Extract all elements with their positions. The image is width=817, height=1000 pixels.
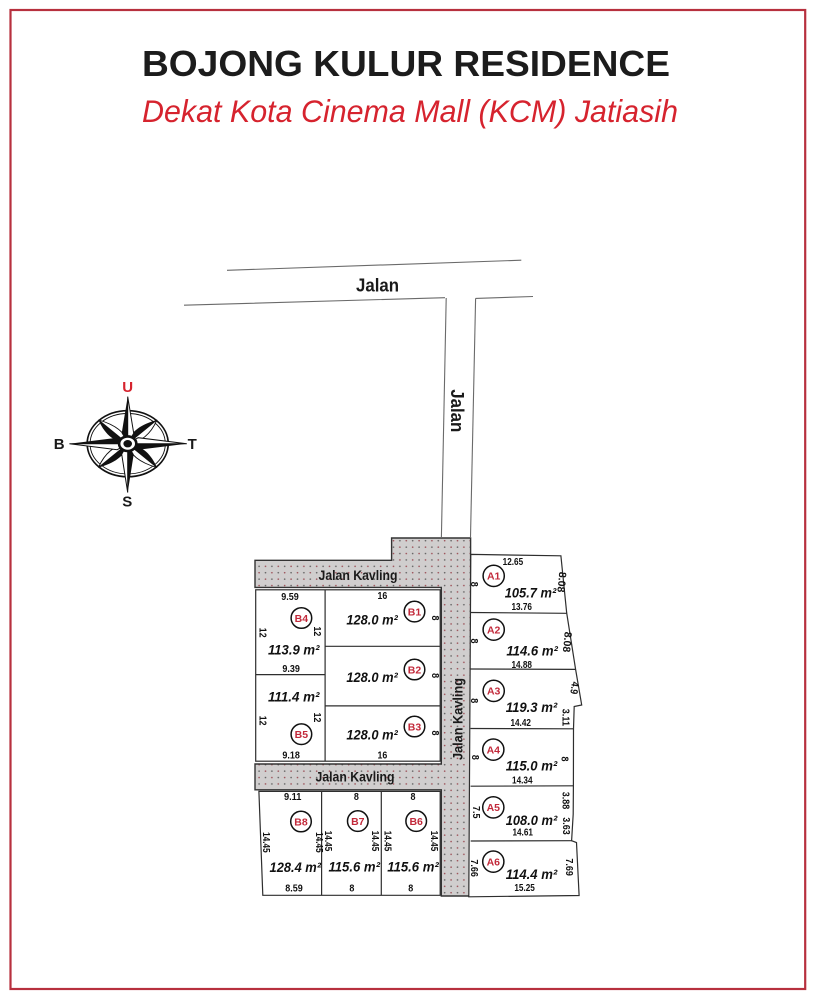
svg-text:111.4 m²: 111.4 m² <box>268 690 320 705</box>
svg-text:8: 8 <box>354 791 359 803</box>
svg-text:8: 8 <box>429 731 441 736</box>
svg-text:14.45: 14.45 <box>428 831 440 852</box>
svg-text:B7: B7 <box>351 816 365 828</box>
svg-text:119.3 m²: 119.3 m² <box>506 700 558 715</box>
svg-text:B5: B5 <box>295 729 309 741</box>
svg-text:Dekat Kota Cinema Mall (KCM) J: Dekat Kota Cinema Mall (KCM) Jatiasih <box>142 93 678 129</box>
svg-text:8: 8 <box>429 616 441 621</box>
svg-text:8.08: 8.08 <box>560 631 574 653</box>
svg-text:8: 8 <box>468 639 480 644</box>
svg-text:A3: A3 <box>487 686 501 698</box>
svg-text:3.88: 3.88 <box>559 792 571 810</box>
svg-text:B8: B8 <box>294 816 308 828</box>
svg-text:B4: B4 <box>295 613 309 625</box>
svg-text:B: B <box>54 436 65 453</box>
svg-text:B3: B3 <box>408 721 422 733</box>
svg-text:14.42: 14.42 <box>510 717 531 729</box>
svg-text:8: 8 <box>411 791 416 803</box>
svg-text:16: 16 <box>378 590 388 602</box>
svg-text:115.0 m²: 115.0 m² <box>506 759 558 774</box>
svg-text:A5: A5 <box>487 802 501 814</box>
svg-text:7.69: 7.69 <box>563 858 575 876</box>
svg-text:12.65: 12.65 <box>503 556 524 568</box>
svg-text:B6: B6 <box>409 816 423 828</box>
svg-text:Jalan: Jalan <box>356 274 399 295</box>
svg-text:13.76: 13.76 <box>511 601 532 613</box>
svg-text:9.18: 9.18 <box>282 749 300 761</box>
svg-text:14.61: 14.61 <box>512 826 533 838</box>
svg-text:114.4 m²: 114.4 m² <box>506 867 558 882</box>
svg-text:113.9 m²: 113.9 m² <box>268 643 320 658</box>
svg-text:12: 12 <box>256 716 268 726</box>
svg-text:8: 8 <box>469 755 481 760</box>
svg-text:4.9: 4.9 <box>567 681 581 695</box>
svg-text:8: 8 <box>468 698 480 703</box>
svg-text:8: 8 <box>408 883 413 895</box>
svg-text:14.45: 14.45 <box>382 831 394 852</box>
svg-text:128.4 m²: 128.4 m² <box>270 860 322 875</box>
svg-text:Jalan Kavling: Jalan Kavling <box>451 678 466 760</box>
svg-text:14.45: 14.45 <box>369 831 381 852</box>
svg-text:9.59: 9.59 <box>281 591 299 603</box>
svg-text:8: 8 <box>558 757 570 762</box>
svg-text:16: 16 <box>378 749 388 761</box>
svg-text:115.6 m²: 115.6 m² <box>328 859 380 874</box>
svg-text:BOJONG KULUR RESIDENCE: BOJONG KULUR RESIDENCE <box>142 43 670 84</box>
svg-text:Jalan Kavling: Jalan Kavling <box>319 568 398 583</box>
svg-text:105.7 m²: 105.7 m² <box>505 586 557 601</box>
svg-text:12: 12 <box>256 628 268 638</box>
svg-text:A1: A1 <box>487 571 501 583</box>
svg-text:A2: A2 <box>487 624 501 636</box>
svg-text:8: 8 <box>349 883 354 895</box>
svg-text:14.34: 14.34 <box>512 774 533 786</box>
svg-text:8: 8 <box>468 582 480 587</box>
svg-text:9.39: 9.39 <box>282 663 300 675</box>
svg-text:A6: A6 <box>487 856 501 868</box>
svg-text:Jalan: Jalan <box>447 389 467 432</box>
svg-text:15.25: 15.25 <box>514 882 535 894</box>
svg-text:Jalan Kavling: Jalan Kavling <box>316 770 395 785</box>
svg-text:14.88: 14.88 <box>511 659 532 671</box>
svg-text:S: S <box>122 494 132 511</box>
svg-text:3.11: 3.11 <box>559 709 571 727</box>
svg-text:114.6 m²: 114.6 m² <box>506 644 558 659</box>
svg-text:9.11: 9.11 <box>284 791 302 803</box>
svg-text:12: 12 <box>311 627 323 637</box>
svg-text:14.45: 14.45 <box>322 831 334 852</box>
svg-text:A4: A4 <box>487 744 501 756</box>
svg-text:T: T <box>188 436 197 453</box>
svg-text:7.5: 7.5 <box>470 806 482 819</box>
svg-text:128.0 m²: 128.0 m² <box>346 670 398 685</box>
svg-text:128.0 m²: 128.0 m² <box>346 612 398 627</box>
svg-text:8: 8 <box>429 673 441 678</box>
svg-text:B1: B1 <box>408 606 422 618</box>
svg-text:14.45: 14.45 <box>260 832 272 853</box>
svg-text:115.6 m²: 115.6 m² <box>387 859 439 874</box>
svg-text:B2: B2 <box>408 664 422 676</box>
svg-text:8.08: 8.08 <box>554 571 568 593</box>
svg-text:12: 12 <box>311 713 323 723</box>
svg-text:3.63: 3.63 <box>560 817 572 835</box>
svg-text:U: U <box>122 379 133 396</box>
svg-text:128.0 m²: 128.0 m² <box>346 728 398 743</box>
svg-text:8.59: 8.59 <box>285 882 303 894</box>
svg-text:7.66: 7.66 <box>468 859 480 877</box>
